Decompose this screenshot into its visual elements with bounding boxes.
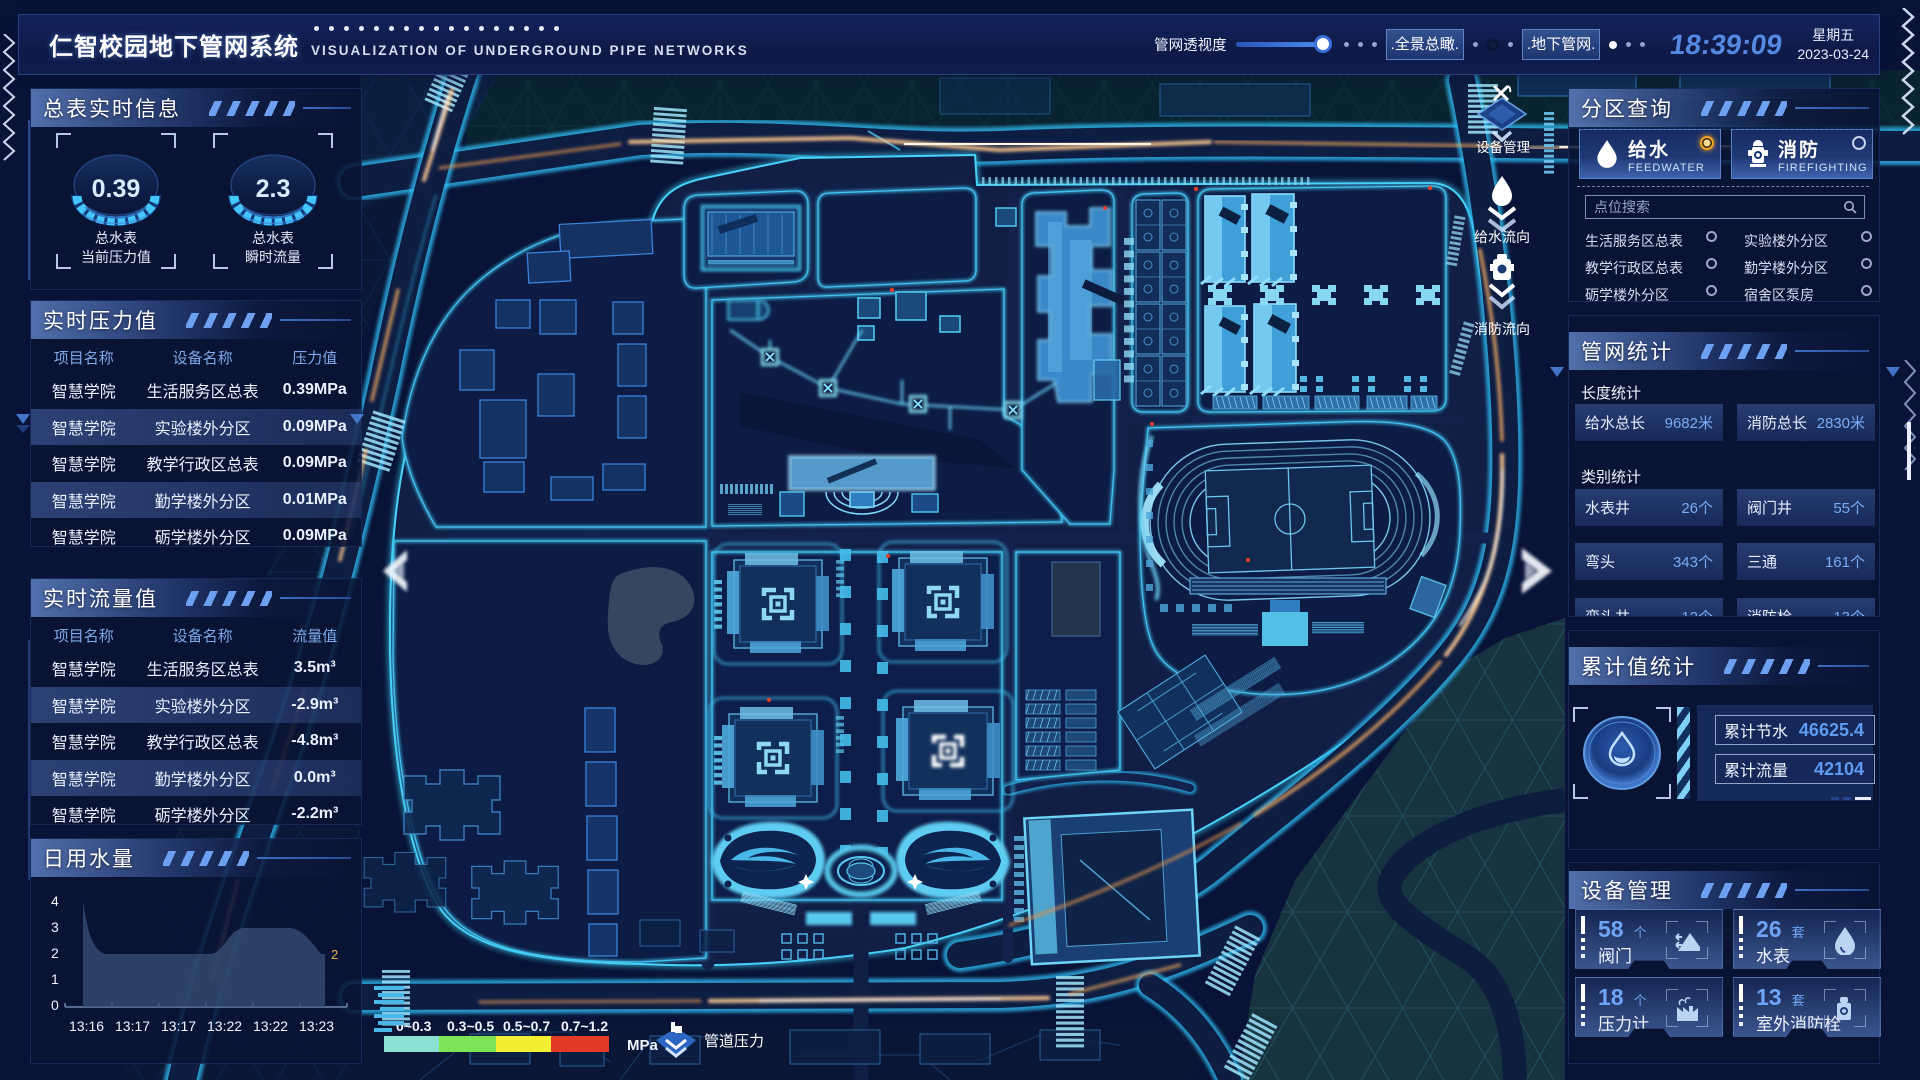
svg-text:0.39: 0.39 bbox=[92, 175, 141, 203]
svg-text:消防流向: 消防流向 bbox=[1474, 321, 1530, 337]
svg-text:总水表: 总水表 bbox=[252, 230, 294, 246]
svg-text:3: 3 bbox=[51, 919, 59, 935]
svg-text:给水流向: 给水流向 bbox=[1474, 229, 1530, 245]
svg-text:4: 4 bbox=[51, 893, 59, 909]
svg-text:0: 0 bbox=[51, 997, 59, 1013]
svg-text:瞬时流量: 瞬时流量 bbox=[245, 249, 301, 265]
svg-text:管道压力: 管道压力 bbox=[704, 1033, 764, 1050]
svg-text:13:17: 13:17 bbox=[115, 1018, 150, 1034]
svg-text:13:16: 13:16 bbox=[69, 1018, 104, 1034]
svg-text:总水表: 总水表 bbox=[95, 230, 137, 246]
svg-text:13:22: 13:22 bbox=[207, 1018, 242, 1034]
svg-text:当前压力值: 当前压力值 bbox=[81, 249, 151, 265]
svg-text:设备管理: 设备管理 bbox=[1476, 139, 1530, 155]
svg-text:13:17: 13:17 bbox=[161, 1018, 196, 1034]
svg-text:2.3: 2.3 bbox=[256, 175, 291, 203]
svg-text:13:22: 13:22 bbox=[253, 1018, 288, 1034]
svg-text:1: 1 bbox=[51, 971, 59, 987]
svg-text:2: 2 bbox=[51, 945, 59, 961]
svg-text:2: 2 bbox=[331, 947, 338, 962]
svg-text:13:23: 13:23 bbox=[299, 1018, 334, 1034]
